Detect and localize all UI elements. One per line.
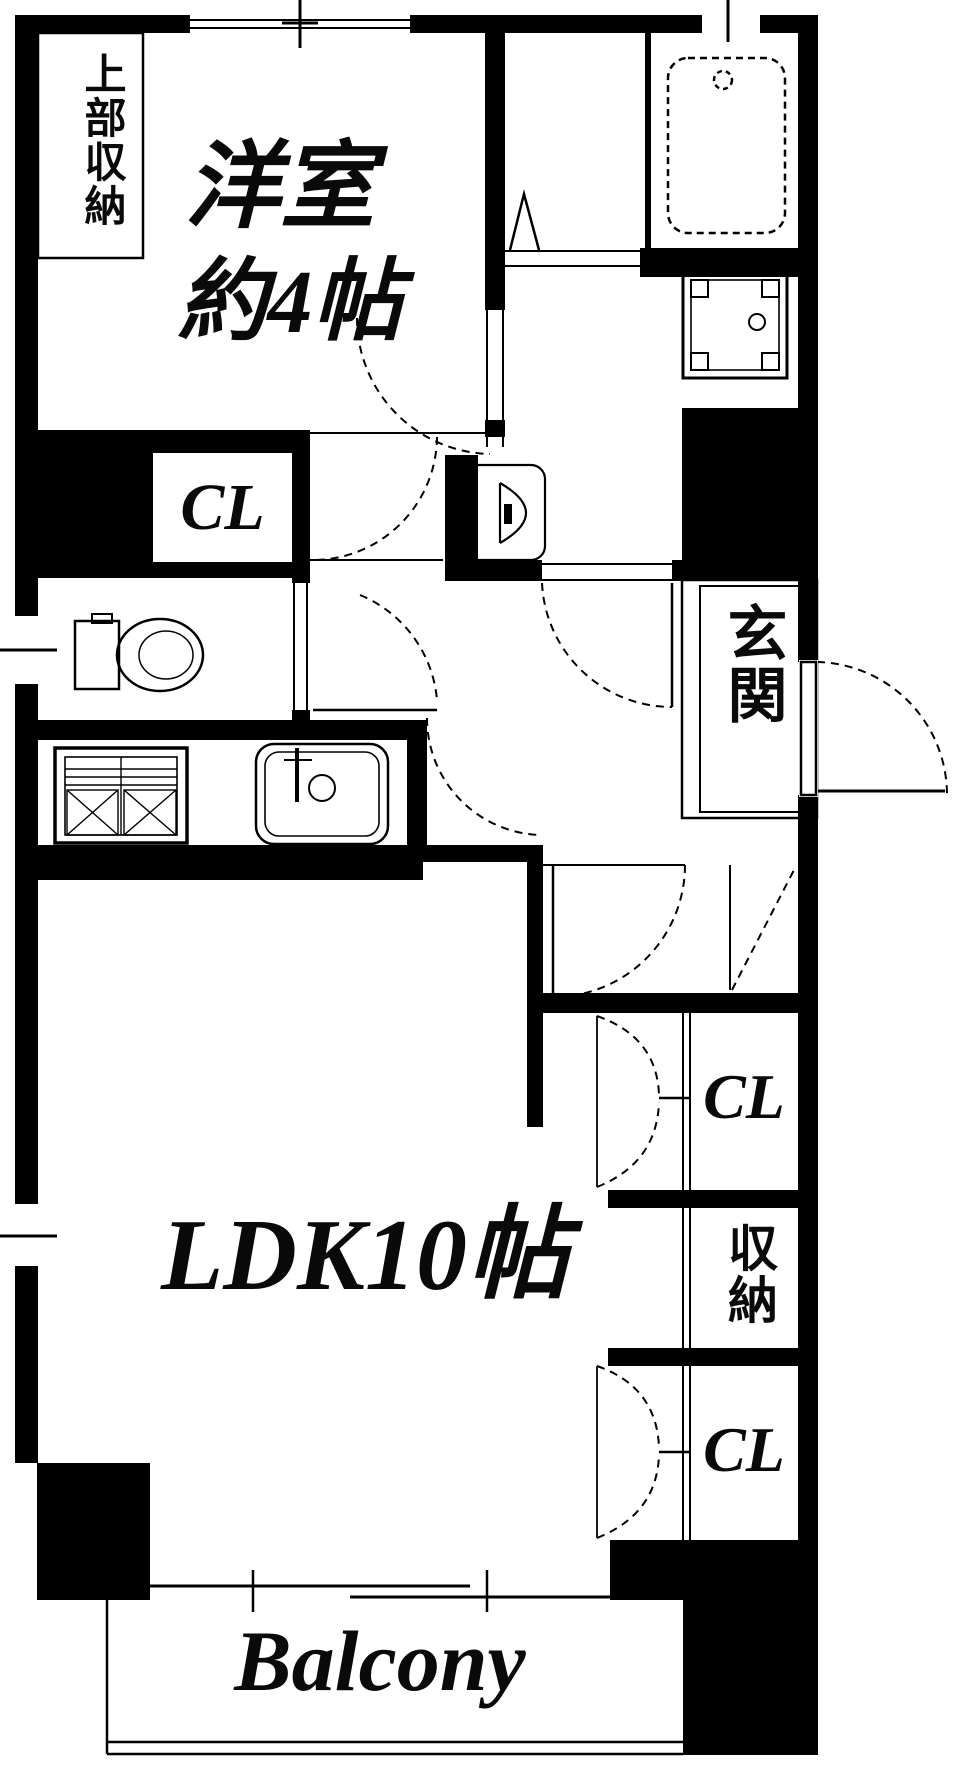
- floor-plan: 上部収納 洋室 約4帖 CL 玄関 CL 収納 CL LDK10帖 Balcon…: [0, 0, 960, 1771]
- washing-machine-pan: [683, 272, 787, 378]
- label-closet-upper: CL: [153, 475, 292, 541]
- sliding-window: [150, 1570, 683, 1612]
- window-toilet: [0, 616, 57, 684]
- label-closet-lower: CL: [690, 1418, 798, 1482]
- door-arc-nook: [553, 865, 685, 997]
- kitchen-sink: [256, 744, 388, 844]
- label-western-room-line1: 洋室: [130, 140, 430, 235]
- bathtub: [668, 58, 785, 233]
- bifold-closet-lower: [597, 1366, 690, 1538]
- label-storage: 収納: [718, 1222, 774, 1326]
- entrance-swing-door: [799, 660, 947, 797]
- label-western-room-line2: 約4帖: [140, 258, 440, 348]
- bifold-closet-upper: [597, 1016, 690, 1187]
- door-arc-junction: [313, 437, 437, 560]
- window-ldk-side: [0, 1204, 57, 1266]
- label-entrance: 玄関: [718, 602, 782, 726]
- label-ldk: LDK10帖: [75, 1205, 655, 1307]
- label-balcony: Balcony: [110, 1618, 650, 1704]
- door-arc-washroom: [542, 583, 672, 707]
- door-arc-toilet: [360, 595, 437, 700]
- window-top-main: [190, 0, 410, 48]
- folding-bath-door: [510, 194, 539, 250]
- label-upper-storage: 上部収納: [56, 52, 122, 228]
- label-closet-mid: CL: [690, 1065, 798, 1129]
- toilet: [75, 614, 203, 691]
- gas-stove: [55, 748, 187, 843]
- door-arc-ldk: [427, 718, 540, 835]
- window-bathroom-vent: [702, 0, 760, 42]
